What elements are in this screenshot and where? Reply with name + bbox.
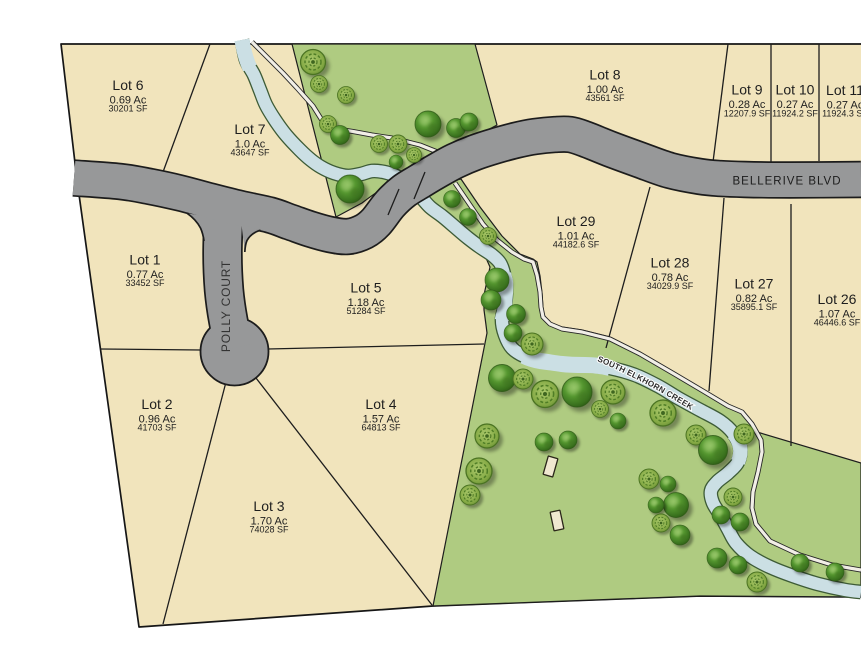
svg-text:64813 SF: 64813 SF (361, 423, 401, 433)
svg-text:Lot 11: Lot 11 (826, 82, 861, 98)
svg-text:43561 SF: 43561 SF (585, 93, 625, 103)
svg-text:Lot 1: Lot 1 (129, 252, 160, 268)
svg-text:Lot 9: Lot 9 (731, 82, 762, 98)
svg-text:43647 SF: 43647 SF (230, 148, 270, 158)
svg-text:Lot 26: Lot 26 (818, 291, 857, 307)
svg-text:11924.3 SF: 11924.3 SF (822, 109, 861, 119)
svg-text:35895.1 SF: 35895.1 SF (731, 302, 778, 312)
svg-text:Lot 29: Lot 29 (557, 213, 596, 229)
svg-text:74028 SF: 74028 SF (249, 525, 289, 535)
svg-text:41703 SF: 41703 SF (137, 423, 177, 433)
svg-text:51284 SF: 51284 SF (346, 306, 386, 316)
svg-text:Lot 2: Lot 2 (141, 396, 172, 412)
svg-text:33452 SF: 33452 SF (125, 278, 165, 288)
svg-text:Lot 10: Lot 10 (776, 82, 815, 98)
svg-text:46446.6 SF: 46446.6 SF (814, 318, 861, 328)
svg-text:12207.9 SF: 12207.9 SF (724, 108, 771, 118)
svg-text:POLLY COURT: POLLY COURT (219, 260, 233, 352)
svg-text:34029.9 SF: 34029.9 SF (647, 281, 694, 291)
svg-text:Lot 3: Lot 3 (253, 498, 284, 514)
svg-text:Lot 27: Lot 27 (735, 276, 774, 292)
svg-text:Lot 28: Lot 28 (651, 255, 690, 271)
svg-text:30201 SF: 30201 SF (108, 104, 148, 114)
svg-text:11924.2 SF: 11924.2 SF (772, 108, 818, 118)
svg-text:BELLERIVE BLVD: BELLERIVE BLVD (732, 175, 841, 187)
svg-text:Lot 6: Lot 6 (112, 77, 143, 93)
svg-text:Lot 5: Lot 5 (350, 280, 381, 296)
svg-text:Lot 8: Lot 8 (589, 67, 620, 83)
svg-text:44182.6 SF: 44182.6 SF (553, 240, 600, 250)
svg-text:Lot 4: Lot 4 (365, 396, 396, 412)
svg-text:Lot 7: Lot 7 (234, 121, 265, 137)
